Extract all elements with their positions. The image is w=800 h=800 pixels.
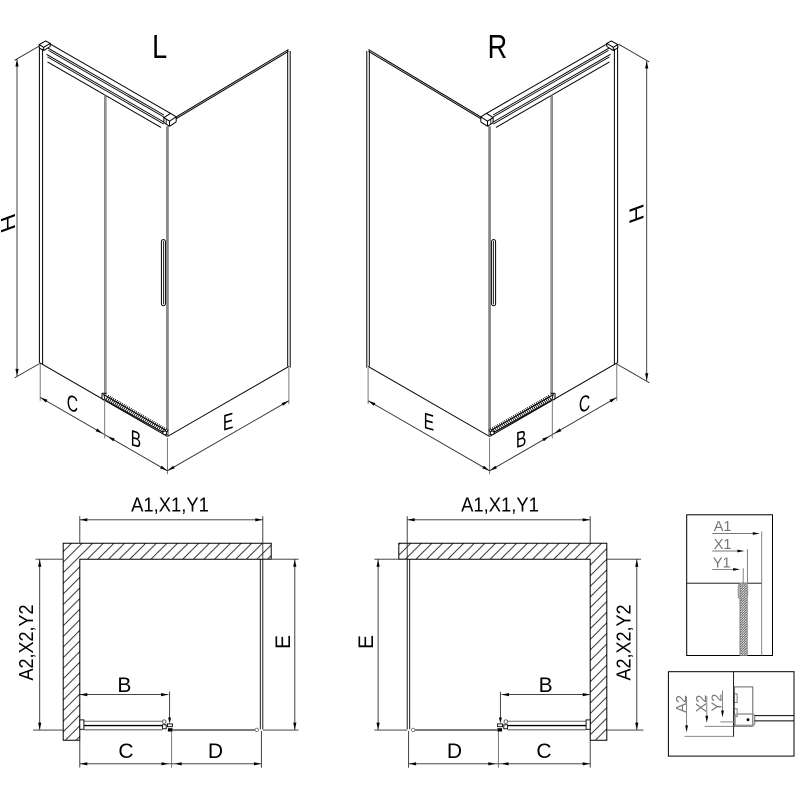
svg-text:B: B <box>539 674 553 697</box>
svg-text:C: C <box>536 740 551 763</box>
svg-text:D: D <box>208 740 223 763</box>
svg-text:C: C <box>579 390 590 418</box>
svg-text:C: C <box>118 740 133 763</box>
svg-text:H: H <box>625 201 648 227</box>
svg-text:A1,X1,Y1: A1,X1,Y1 <box>461 495 539 517</box>
svg-text:X2: X2 <box>694 695 710 713</box>
svg-text:B: B <box>117 674 131 697</box>
svg-text:E: E <box>355 635 378 649</box>
svg-text:A2,X2,Y2: A2,X2,Y2 <box>613 604 635 680</box>
svg-text:A2: A2 <box>674 695 690 713</box>
svg-text:L: L <box>152 29 167 65</box>
svg-text:D: D <box>447 740 462 763</box>
svg-text:A1,X1,Y1: A1,X1,Y1 <box>131 495 209 517</box>
svg-text:Y1: Y1 <box>713 555 731 571</box>
svg-text:E: E <box>424 408 435 436</box>
svg-text:B: B <box>516 426 527 454</box>
svg-text:C: C <box>67 390 78 418</box>
svg-text:E: E <box>272 635 295 649</box>
svg-text:Y2: Y2 <box>710 694 726 712</box>
svg-text:E: E <box>223 408 234 436</box>
svg-text:A1: A1 <box>714 519 732 535</box>
svg-text:R: R <box>488 29 508 65</box>
svg-text:B: B <box>131 426 142 454</box>
svg-text:A2,X2,Y2: A2,X2,Y2 <box>16 604 38 680</box>
